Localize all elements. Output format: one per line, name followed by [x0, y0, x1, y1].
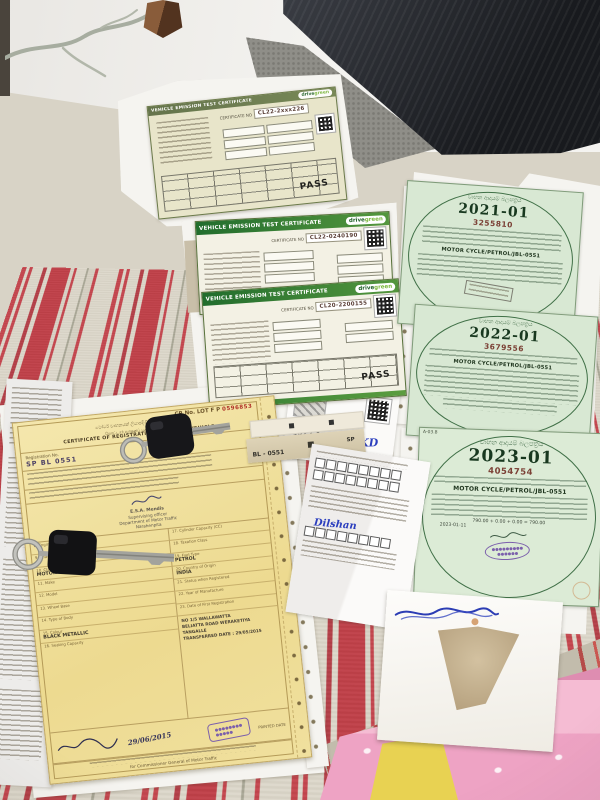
field-box [274, 341, 323, 353]
license-serial: 4054754 [488, 466, 533, 478]
photo-of-vehicle-documents: VEHICLE EMISSION TEST CERTIFICATE driveg… [0, 0, 600, 800]
license-fee-line: 790.00 + 0.00 + 0.00 = 790.00 [472, 519, 545, 527]
drivegreen-logo: drivegreen [355, 282, 395, 293]
motorcycle-key-bottom [8, 521, 189, 592]
drivegreen-logo: drivegreen [346, 215, 386, 225]
field-box [225, 147, 268, 160]
field-box [263, 250, 313, 262]
certificate-number: CERTIFICATE NO CL20-2200155 [281, 298, 372, 314]
license-content: වාහන ආදායම් බලපත්‍රය 2023-01 4054754 MOT… [423, 437, 594, 597]
signature-squiggle [488, 529, 528, 542]
blurred-text-block [0, 688, 44, 760]
blurred-text-block [417, 253, 563, 287]
license-corner-mark: A-03.8 [423, 430, 438, 436]
qr-code [374, 295, 396, 317]
blue-pen-scribble [391, 596, 503, 632]
revenue-license-2023: A-03.8 වාහන ආදායම් බලපත්‍රය 2023-01 4054… [413, 427, 600, 607]
drivegreen-logo: drivegreen [298, 89, 332, 99]
purple-office-stamp: ●●●●●●●●● ●●●●●● [485, 541, 531, 561]
certificate-title: VEHICLE EMISSION TEST CERTIFICATE [199, 219, 322, 231]
field-box [337, 263, 383, 274]
certificate-title: VEHICLE EMISSION TEST CERTIFICATE [205, 288, 328, 303]
blurred-text-block [431, 493, 588, 520]
emission-certificate-3: VEHICLE EMISSION TEST CERTIFICATE driveg… [201, 278, 407, 410]
license-content: වාහන ආදායම් බලපත්‍රය 2022-01 3679556 MOT… [416, 314, 587, 437]
blurred-text-block [156, 117, 212, 166]
qr-code [364, 227, 386, 249]
license-issue-date: 2023-01-11 [440, 523, 467, 529]
field-box [265, 272, 315, 284]
province-mark: SP [346, 437, 354, 444]
orange-seal-mark [572, 581, 591, 600]
emission-certificate-1: VEHICLE EMISSION TEST CERTIFICATE driveg… [147, 86, 348, 219]
dark-mark [329, 420, 334, 425]
license-year: 2023-01 [468, 446, 554, 469]
printed-date-label: PRINTED DATE [258, 721, 286, 729]
certificate-number: CERTIFICATE NO CL22-0240190 [271, 230, 362, 245]
field-box [264, 261, 314, 273]
signature-squiggle [55, 732, 121, 757]
license-serial: 3255810 [473, 218, 514, 230]
field-box [337, 252, 383, 263]
blurred-text-block [210, 320, 271, 364]
handwritten-date: 29/06/2015 [127, 730, 172, 747]
purple-office-stamp: ●●●●●●●●●●●●● [207, 717, 252, 743]
qr-code [315, 114, 335, 134]
branch-wall-art [5, 0, 155, 90]
brown-stain [419, 623, 535, 715]
dark-mark [289, 423, 294, 428]
stained-envelope [377, 590, 563, 752]
plate-number-text: BL - 0551 [252, 449, 284, 459]
qr-code [365, 397, 392, 424]
field-box [345, 331, 394, 343]
